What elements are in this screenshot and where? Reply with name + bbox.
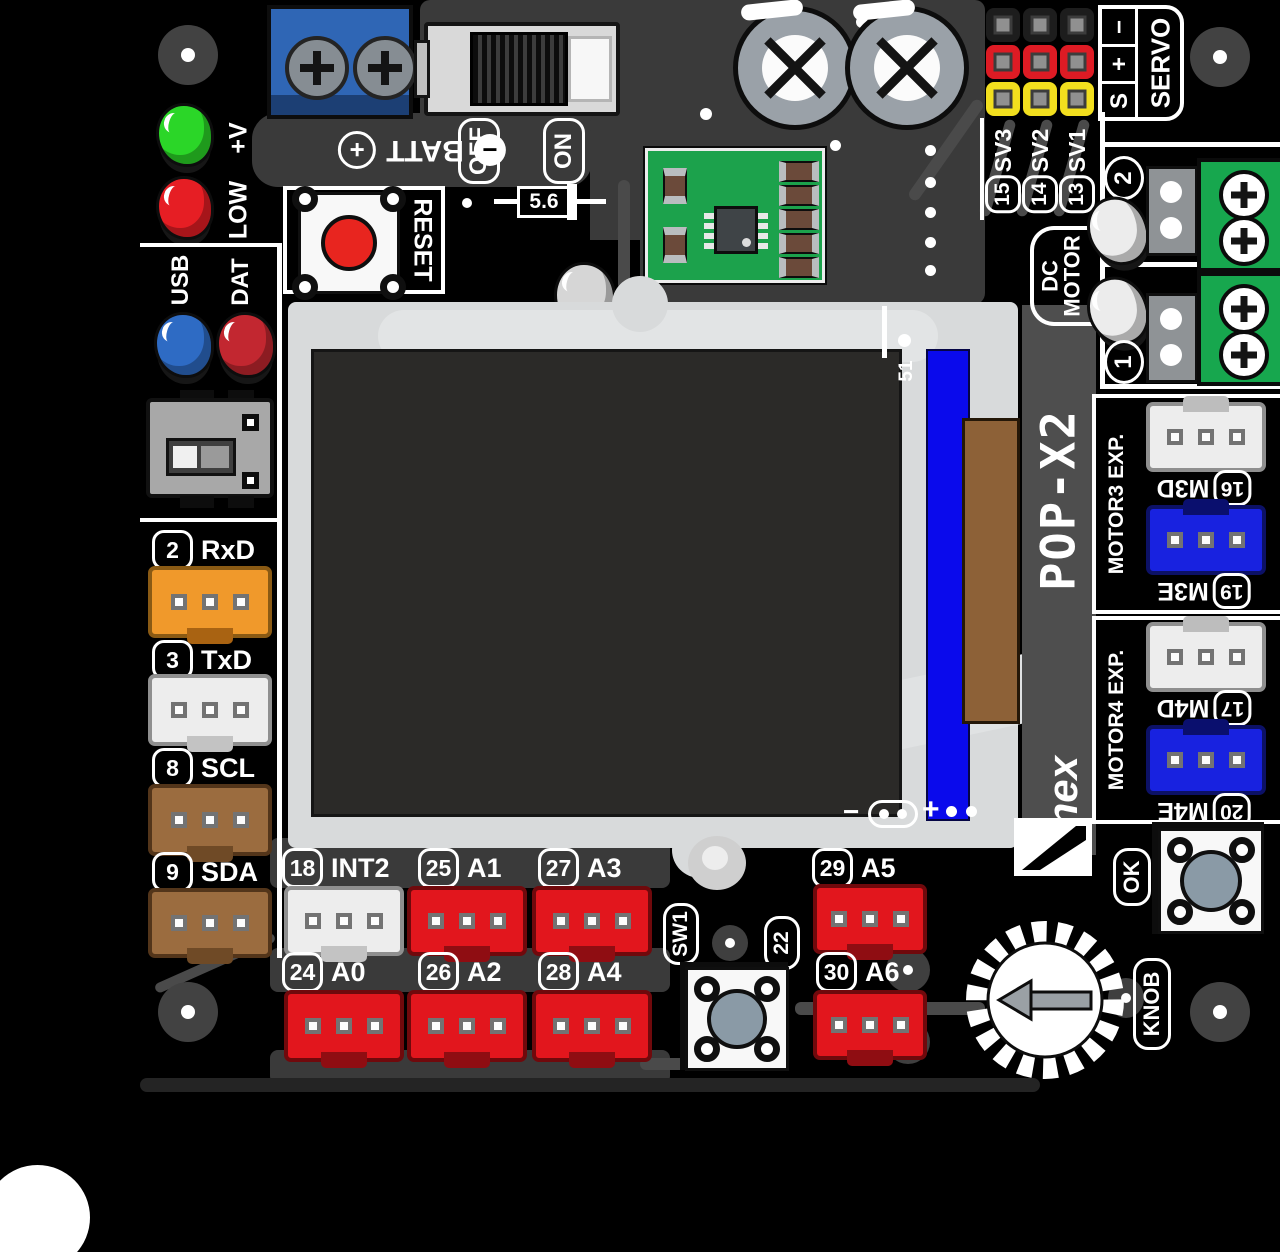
motor1-connector [1146,293,1198,383]
vplus-label: +V [225,122,254,153]
port-a0-marking: 24 A0 [282,952,366,992]
knob-dial[interactable] [965,920,1125,1080]
lcd-plus-label: + [922,793,940,827]
servo-plus-label: + [1106,57,1134,71]
via [898,334,911,347]
via [925,145,936,156]
usb-connector[interactable] [146,398,274,498]
via [925,237,936,248]
trimmer-screw-icon[interactable] [285,36,349,100]
mounting-hole [158,25,218,85]
a3-connector [532,886,652,956]
pcb-board: − BATT + OFF ON 5.6 RESET +V LOW USB DAT [0,0,1280,1252]
ok-button[interactable] [1158,828,1264,934]
low-label: LOW [225,181,254,239]
silk-line [1100,142,1280,147]
servo-title: SERVO [1145,18,1176,109]
motor-ch-number: 2 [1104,156,1144,200]
zener-band [567,184,577,220]
zener-value: 5.6 [529,190,558,214]
motor2-num-marking: 2 [1104,158,1144,198]
pin-name: SV1 [1064,129,1091,172]
silk-divider [140,518,280,522]
low-battery-led [156,176,214,240]
servo-minus-label: − [1106,19,1134,33]
m3d-connector [1146,402,1266,472]
a4-connector [532,990,652,1062]
power-slide-switch[interactable] [424,22,620,116]
port-number: 8 [152,748,193,788]
pin-name: SV2 [1027,129,1054,172]
batt-plus-icon: + [338,131,376,169]
sw1-marking: SW1 [663,903,699,965]
lcd-pads [868,800,918,828]
switch-recess [568,36,612,102]
reset-marking: RESET [404,190,440,290]
usb-slot [166,438,236,476]
motor1-terminal [1197,272,1280,386]
port-number: 29 [812,848,853,888]
knob-label: KNOB [1139,972,1165,1037]
mounting-hole [1190,27,1250,87]
port-name: INT2 [331,853,390,884]
servo-pin-gnd [986,8,1020,42]
reset-button[interactable] [298,192,400,294]
motor3-exp-title: MOTOR3 EXP. [1105,434,1129,574]
servo-ch3-marking: 15 SV3 [984,118,1022,224]
ok-marking: OK [1113,848,1151,906]
dc-motor-line2: MOTOR [1062,235,1084,316]
via [925,177,936,188]
dat-led [216,312,276,378]
on-label: ON [550,133,578,169]
usb-led [154,312,214,378]
port-number: 9 [152,852,193,892]
a0-connector [284,990,404,1062]
capacitor-smd-icon [779,209,819,230]
port-name: A1 [467,853,502,884]
mounting-hole [1190,982,1250,1042]
port-a5-marking: 29 A5 [812,848,896,888]
ref-51-marking: 51 [892,352,922,390]
motor4-exp-title: MOTOR4 EXP. [1105,650,1129,790]
scl-connector [148,784,272,856]
port-name: A6 [865,957,900,988]
sw1-label: SW1 [669,911,693,957]
port-name: SCL [201,753,255,784]
servo-sig-label: S [1106,92,1134,108]
capacitor-smd-icon [779,161,819,182]
zener-diode: 5.6 [517,186,571,218]
lcd-screen [311,349,902,817]
port-scl-marking: 8 SCL [152,748,255,788]
port-number: 24 [282,952,323,992]
voltage-trimmer[interactable] [267,5,413,119]
port-number: 26 [418,952,459,992]
m3e-connector [1146,505,1266,575]
pin-number: 14 [1022,175,1058,213]
power-led [156,103,214,167]
via [830,140,841,151]
motor1-num-marking: 1 [1104,342,1144,382]
ok-label: OK [1119,861,1145,894]
port-a4-marking: 28 A4 [538,952,622,992]
port-name: A5 [861,853,896,884]
ok-cap[interactable] [1180,850,1242,912]
int2-connector [284,886,404,956]
pin-name: SV3 [990,129,1017,172]
port-name: SDA [201,857,258,888]
usb-pin [242,414,259,431]
port-name: RxD [201,535,255,566]
port-a6-marking: 30 A6 [816,952,900,992]
reset-cap[interactable] [321,215,377,271]
capacitor-smd-icon [779,233,819,254]
port-sda-marking: 9 SDA [152,852,258,892]
capacitor-smd-icon [779,257,819,278]
txd-connector [148,674,272,746]
trace [618,180,630,290]
port-number: 25 [418,848,459,888]
a5-connector [813,884,927,954]
port-name: A0 [331,957,366,988]
motor4-exp-marking: MOTOR4 EXP. [1094,620,1140,820]
switch-tab [414,40,430,98]
lcd-flex-cable [962,418,1020,724]
m3e-marking: 19 M3E [1148,575,1260,607]
port-a1-marking: 25 A1 [418,848,502,888]
batt-marking: − BATT + [262,118,582,182]
port-int2-marking: 18 INT2 [282,848,390,888]
pin22-label: 22 [770,931,794,954]
servo-pin-gnd [1060,8,1094,42]
servo-pin-vcc [986,45,1020,79]
usb-tab [228,496,254,508]
off-marking: OFF [458,118,500,184]
motor3-exp-marking: MOTOR3 EXP. [1094,398,1140,610]
a1-connector [407,886,527,956]
m4e-connector [1146,725,1266,795]
mounting-hole [158,982,218,1042]
port-name: A2 [467,957,502,988]
on-marking: ON [543,118,585,184]
vplus-marking: +V [218,106,260,170]
sw1-button[interactable] [685,967,789,1071]
usb-marking: USB [160,246,202,314]
lcd-minus-label: − [843,796,859,828]
port-rxd-marking: 2 RxD [152,530,255,570]
servo-pin-gnd [1023,8,1057,42]
pin-number: 13 [1059,175,1095,213]
board-name: POP-X2 [1032,409,1087,591]
switch-slider[interactable] [470,32,568,106]
port-name: A3 [587,853,622,884]
port-number: 27 [538,848,579,888]
via [925,207,936,218]
board-name-marking: POP-X2 [1022,380,1096,620]
resistor-icon [663,227,687,263]
servo-ch2-marking: 14 SV2 [1021,118,1059,224]
servo-pin-vcc [1060,45,1094,79]
reset-label: RESET [408,198,437,281]
pin-name: M3E [1157,577,1208,606]
board-edge-shade [140,1078,1040,1092]
servo-pin-vcc [1023,45,1057,79]
a2-connector [407,990,527,1062]
corner-dot [0,1165,90,1252]
servo-legend: − + S SERVO [1098,5,1184,121]
dat-marking: DAT [220,248,262,316]
ok-frame [1152,822,1264,934]
rtc-module [645,148,825,283]
servo-ch1-marking: 13 SV1 [1058,118,1096,224]
batt-label: BATT [386,133,464,167]
pin-number: 19 [1213,573,1251,609]
motor-ch-number: 1 [1104,340,1144,384]
ic-chip-icon [714,206,758,254]
via [462,198,472,208]
m4d-connector [1146,622,1266,692]
port-number: 18 [282,848,323,888]
off-label: OFF [465,127,493,175]
port-name: TxD [201,645,252,676]
dc-motor-line1: DC [1040,235,1062,316]
port-number: 28 [538,952,579,992]
sda-connector [148,888,272,958]
capacitor-icon [845,6,969,130]
lcd-tab [612,276,668,332]
port-a3-marking: 27 A3 [538,848,622,888]
sw1-frame [680,962,788,1070]
resistor-icon [663,168,687,204]
usb-pin [242,472,259,489]
port-a2-marking: 26 A2 [418,952,502,992]
low-marking: LOW [218,172,260,248]
motor2-terminal [1197,158,1280,272]
dat-label: DAT [227,258,255,306]
usb-label: USB [167,255,195,306]
capacitor-icon [733,6,857,130]
servo-pin-sig [1060,82,1094,116]
inex-logo-icon [1014,818,1092,876]
servo-pin-sig [1023,82,1057,116]
port-number: 2 [152,530,193,570]
via [700,108,712,120]
capacitor-smd-icon [779,185,819,206]
port-number: 30 [816,952,857,992]
a6-connector [813,990,927,1060]
servo-pin-sig [986,82,1020,116]
knob-marking: KNOB [1133,958,1171,1050]
dc-motor-marking: DC MOTOR [1034,230,1090,322]
via [925,265,936,276]
sw1-cap[interactable] [707,989,767,1049]
port-name: A4 [587,957,622,988]
sw1-led [688,836,746,890]
pad [712,925,748,961]
usb-tab [180,496,214,508]
rxd-connector [148,566,272,638]
lcd-pads [946,806,977,817]
motor2-connector [1146,166,1198,256]
pin-number: 15 [985,175,1021,213]
ref-51-label: 51 [896,360,918,381]
silk-mark [882,306,887,358]
trimmer-screw-icon[interactable] [353,36,417,100]
